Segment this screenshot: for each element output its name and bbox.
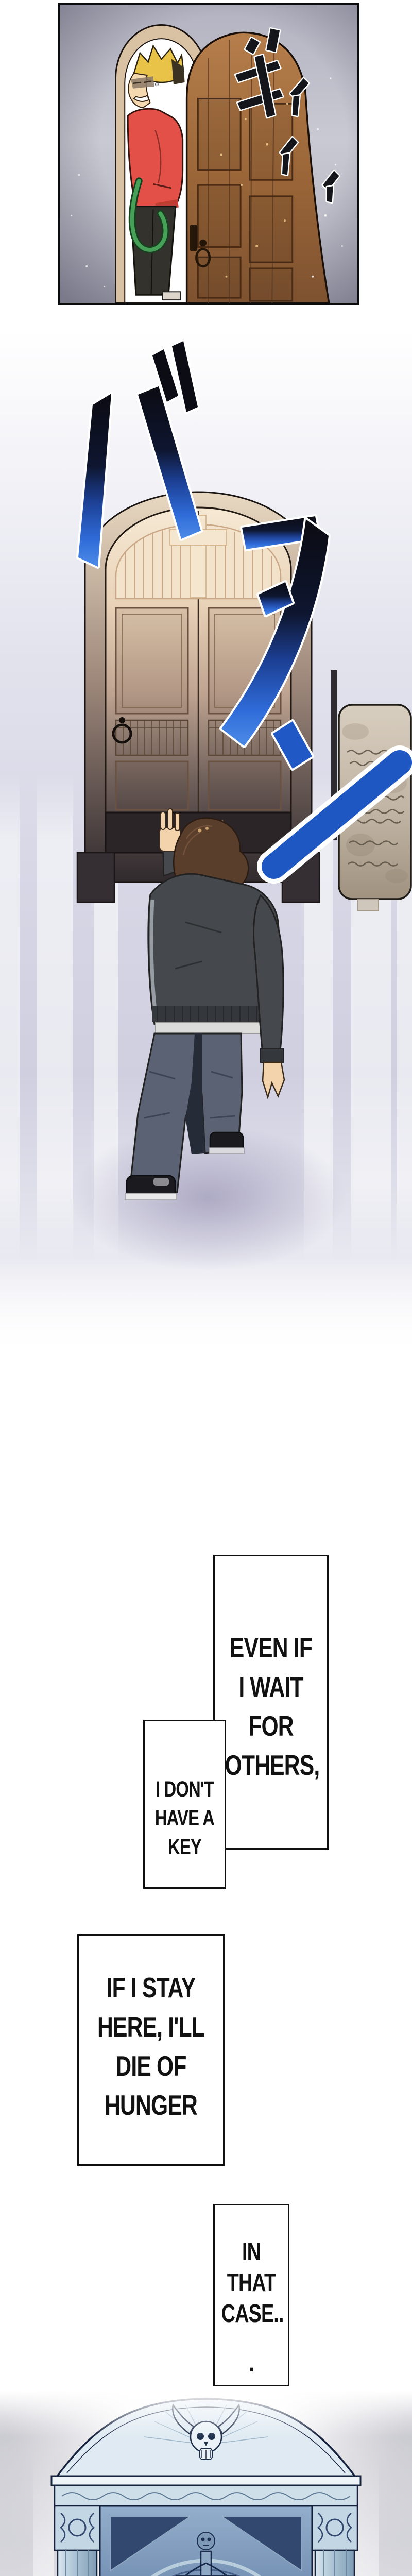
knocker-plate bbox=[119, 717, 125, 723]
locked-door-art bbox=[0, 330, 412, 1365]
speech-line: IN bbox=[221, 2235, 281, 2268]
speech-box-wait: EVEN IF I WAIT FOR OTHERS, bbox=[213, 1555, 329, 1850]
speech-line: IF I STAY bbox=[92, 1968, 210, 2009]
sign-post bbox=[331, 670, 337, 840]
panel-fade bbox=[0, 2391, 412, 2437]
left-pilaster bbox=[50, 2506, 104, 2576]
speech-line: HUNGER bbox=[92, 2085, 210, 2127]
panel-dungeon-door bbox=[0, 2391, 412, 2576]
mail-slot bbox=[190, 225, 198, 251]
claw-hand bbox=[263, 1062, 284, 1097]
speech-line: THAT bbox=[221, 2266, 281, 2299]
speech-line: . bbox=[221, 2346, 281, 2379]
right-pilaster bbox=[308, 2506, 362, 2576]
speech-line: I WAIT bbox=[225, 1667, 317, 1708]
speech-line: OTHERS, bbox=[225, 1745, 317, 1787]
panel-exit-scene: ギィィ bbox=[58, 3, 359, 305]
panel-locked-door bbox=[0, 330, 412, 1365]
speech-line: DIE OF bbox=[92, 2046, 210, 2088]
speech-line: FOR bbox=[225, 1706, 317, 1748]
speech-line: I DON'T bbox=[152, 1774, 217, 1804]
slam-sfx-text: バタン bbox=[51, 309, 52, 310]
shirt-hem bbox=[156, 1022, 268, 1033]
speech-line: KEY bbox=[152, 1832, 217, 1862]
speech-box-hunger: IF I STAY HERE, I'LL DIE OF HUNGER bbox=[77, 1934, 225, 2166]
speech-line: HERE, I'LL bbox=[92, 2007, 210, 2048]
speech-line: CASE.. bbox=[221, 2297, 281, 2330]
webtoon-page: ギィィ bbox=[0, 0, 412, 2576]
panel-fade bbox=[0, 1257, 412, 1365]
speech-box-key: I DON'T HAVE A KEY bbox=[143, 1720, 226, 1889]
stone-tablet bbox=[339, 705, 411, 910]
knocker-plate bbox=[199, 240, 207, 247]
exit-scene-art bbox=[60, 5, 357, 303]
speech-line: HAVE A bbox=[152, 1803, 217, 1833]
door-skull-icon bbox=[197, 2532, 215, 2550]
speech-box-in-that-case: IN THAT CASE.. . bbox=[213, 2204, 289, 2386]
speech-line: EVEN IF bbox=[225, 1628, 317, 1669]
